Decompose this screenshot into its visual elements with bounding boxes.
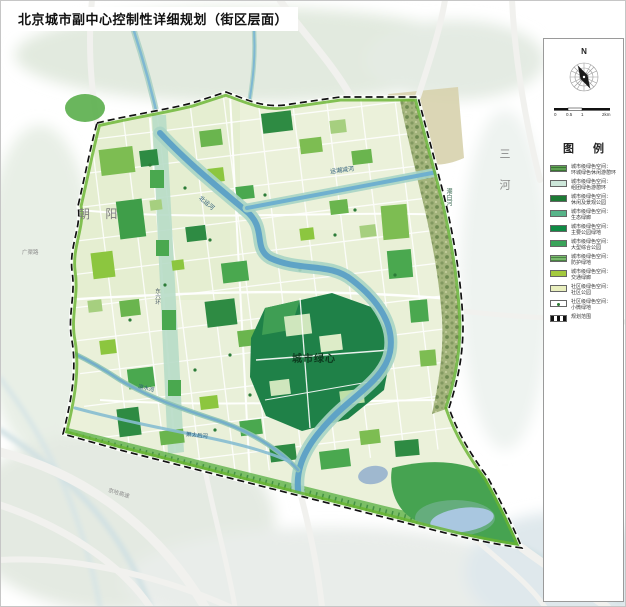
legend-item: 社区级绿色空间：社区公园 xyxy=(550,284,623,296)
map-canvas xyxy=(0,0,626,607)
legend-item: 规划范围 xyxy=(550,314,623,322)
map-info-panel: N 0 0.5 1 2km 图 例 城市级绿色空间：环城绿色休闲游憩环 城市级绿… xyxy=(543,38,624,602)
legend-swatch-icon xyxy=(550,240,567,247)
scale-tick-1: 1 xyxy=(581,112,584,117)
legend-item: 城市级绿色空间：防护绿地 xyxy=(550,254,623,266)
legend-item: 社区级绿色空间：小微绿地 xyxy=(550,299,623,311)
scale-bar: 0 0.5 1 2km xyxy=(552,105,616,118)
legend-swatch-icon xyxy=(550,180,567,187)
compass-rose: N xyxy=(563,45,605,103)
scale-tick-05: 0.5 xyxy=(566,112,573,117)
map-title: 北京城市副中心控制性详细规划（街区层面） xyxy=(8,7,298,31)
legend-swatch-icon xyxy=(550,195,567,202)
legend-swatch-icon xyxy=(550,165,567,172)
legend-item: 城市级绿色空间：组团绿色游憩环 xyxy=(550,179,623,191)
legend-swatch-icon xyxy=(550,300,567,307)
legend-item: 城市级绿色空间：主要公园绿地 xyxy=(550,224,623,236)
north-label: N xyxy=(581,47,587,56)
legend-title: 图 例 xyxy=(555,140,612,156)
legend-list: 城市级绿色空间：环城绿色休闲游憩环 城市级绿色空间：组团绿色游憩环 城市级绿色空… xyxy=(544,164,623,325)
legend-item: 城市级绿色空间：生态绿廊 xyxy=(550,209,623,221)
legend-item: 城市级绿色空间：休闲及景观公园 xyxy=(550,194,623,206)
map-svg xyxy=(0,0,626,607)
planning-map-page: { "page": { "title": "北京城市副中心控制性详细规划（街区层… xyxy=(0,0,626,607)
legend-swatch-icon xyxy=(550,315,567,322)
legend-swatch-icon xyxy=(550,270,567,277)
legend-item: 城市级绿色空间：交通绿廊 xyxy=(550,269,623,281)
legend-item: 城市级绿色空间：大型综合公园 xyxy=(550,239,623,251)
legend-swatch-icon xyxy=(550,285,567,292)
legend-swatch-icon xyxy=(550,210,567,217)
nw-green-patch xyxy=(65,94,105,122)
scale-tick-0: 0 xyxy=(554,112,557,117)
legend-item: 城市级绿色空间：环城绿色休闲游憩环 xyxy=(550,164,623,176)
scale-tick-2km: 2km xyxy=(602,112,611,117)
legend-swatch-icon xyxy=(550,255,567,262)
legend-swatch-icon xyxy=(550,225,567,232)
